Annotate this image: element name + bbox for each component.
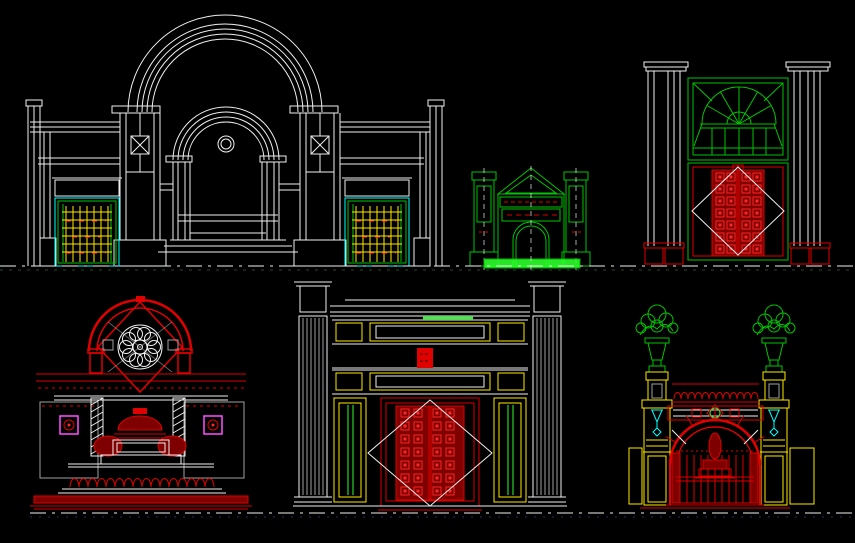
base-platform [30, 496, 252, 509]
right-pylon [562, 168, 590, 270]
entablature-hatch-band [36, 374, 246, 400]
studded-double-door [368, 398, 492, 506]
rose-window [98, 302, 182, 392]
left-pylon [294, 282, 332, 502]
speckled-capital [534, 286, 560, 312]
x-boss-ornament [306, 113, 334, 172]
red-arch [88, 296, 192, 373]
right-medallion [204, 416, 222, 434]
central-portal [158, 107, 300, 252]
fountain-centerpiece [94, 408, 186, 464]
studded-double-door [688, 163, 788, 260]
drawing-paneled-pylon-gate[interactable] [293, 282, 567, 510]
right-statue [158, 436, 186, 456]
hatched-frieze [345, 180, 409, 196]
base-plinth [484, 259, 580, 268]
right-urn-planter [753, 305, 795, 408]
great-arch [112, 15, 338, 113]
fanlight-window [688, 78, 788, 160]
balustrade [58, 464, 226, 493]
left-columns [644, 62, 688, 264]
model-space-canvas[interactable] [0, 0, 855, 543]
pediment [498, 168, 564, 194]
hatched-frieze [55, 180, 119, 196]
left-lamp-pillar [643, 408, 671, 505]
left-urn-planter [636, 305, 678, 408]
left-medallion [60, 416, 78, 434]
speckled-capital [300, 286, 326, 312]
drawing-grand-arched-gate[interactable] [26, 15, 444, 266]
drawing-fanlight-door-gate[interactable] [644, 62, 830, 264]
outer-pilasters [26, 100, 444, 266]
right-lamp-pillar [760, 408, 788, 505]
entablature [30, 122, 430, 164]
right-lattice-door [342, 178, 412, 266]
drawing-urn-arch-gate[interactable] [629, 305, 814, 508]
left-fence-wing [629, 448, 642, 504]
medallion-circle [218, 136, 234, 152]
left-side-panel [334, 398, 366, 502]
right-pylon [294, 113, 346, 266]
lintel-beams [330, 300, 530, 394]
right-side-panel [494, 398, 526, 502]
right-fence-wing [790, 448, 814, 504]
left-statue [94, 436, 122, 456]
left-pylon [470, 168, 498, 270]
left-lattice-door [52, 178, 122, 266]
frieze-bands [500, 197, 562, 221]
lower-ground-line [30, 513, 855, 517]
x-boss-ornament [126, 113, 154, 172]
left-pylon [114, 113, 166, 266]
red-balustrade [672, 384, 759, 402]
drawing-green-memorial-gate[interactable] [470, 166, 590, 272]
drawing-rose-window-fountain-wall[interactable] [30, 296, 252, 509]
right-columns [786, 62, 830, 264]
upper-ground-line [0, 266, 855, 270]
right-pylon [528, 282, 566, 502]
red-plaque [417, 348, 433, 368]
